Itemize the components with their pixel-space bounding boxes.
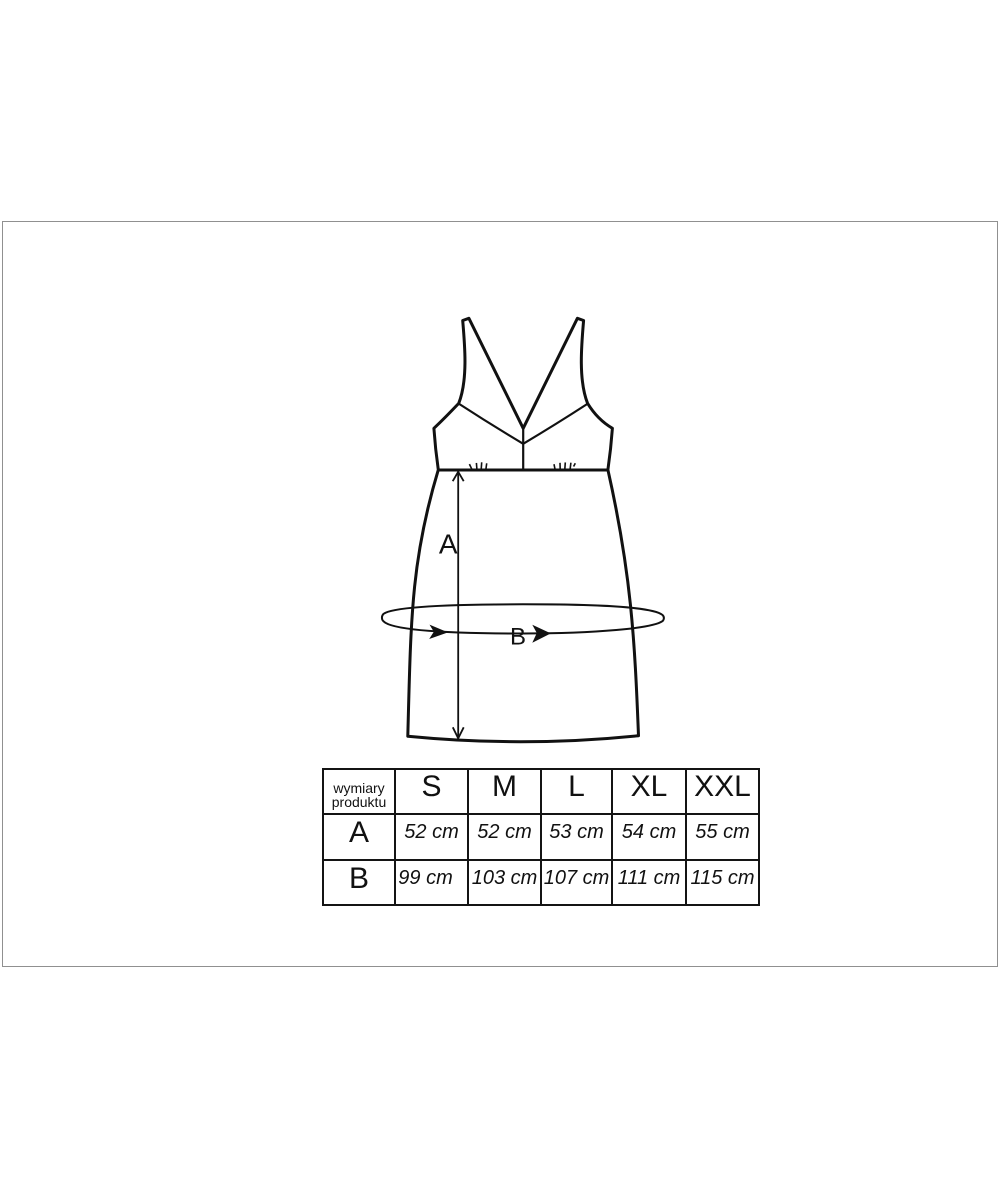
svg-text:B: B [510, 624, 526, 651]
svg-text:A: A [439, 529, 458, 560]
